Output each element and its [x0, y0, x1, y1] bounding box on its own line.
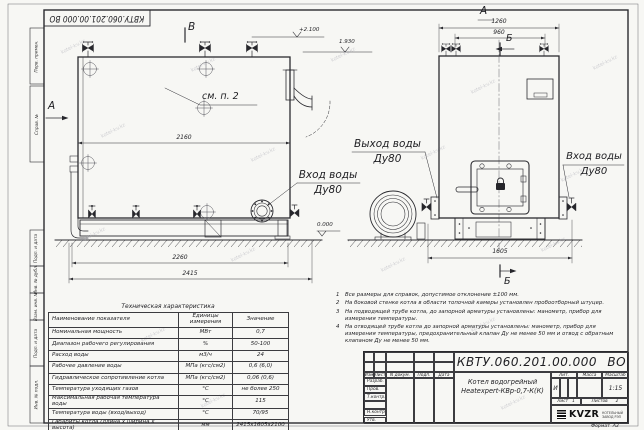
- tech-table-header: Наименование показателя Единицы измерени…: [49, 313, 289, 328]
- rev-cell: [374, 352, 386, 362]
- sheet-label: Лист: [557, 399, 568, 404]
- kvzr-logo-text: KVZR: [569, 409, 599, 420]
- rev-cell: [364, 352, 374, 362]
- dim-1605: 1605: [486, 249, 514, 255]
- row-unit: °С: [179, 384, 233, 395]
- margin-stamp-vzam-inv: Взам. инв. №: [30, 293, 44, 320]
- sheets-cell: Листов 2: [581, 398, 629, 405]
- row-value: 2415х1605х2100: [233, 420, 289, 430]
- row-nkontr-label: Н.контр.: [367, 410, 386, 415]
- tech-table: Наименование показателя Единицы измерени…: [48, 312, 289, 430]
- margin-stamp-label: Подп. и дата: [35, 328, 40, 357]
- title-block: Изм Лист N докум. Подп. Дата Разраб. Про…: [363, 351, 628, 423]
- outlet-label: Выход воды: [350, 139, 425, 150]
- ground-line: [55, 240, 582, 248]
- notes-list: 1Все размеры для справок, допустимое отк…: [336, 292, 628, 346]
- note-text: На боковой стенке котла в области топочн…: [345, 300, 628, 307]
- elevation-1930: 1.930: [339, 40, 355, 46]
- scale-value: 1:15: [609, 385, 622, 392]
- row-name: Максимальная рабочая температура воды: [49, 396, 179, 409]
- company-logo: KVZR КОТЕЛЬНЫЙ ЗАВОД РЭП: [551, 405, 629, 424]
- kvzr-logo-icon: [557, 410, 566, 419]
- row-unit: °С: [179, 408, 233, 419]
- note-number: 1: [336, 292, 345, 299]
- lit-header-label: Лит.: [559, 373, 569, 378]
- inlet-side-label: Вход воды: [296, 170, 360, 181]
- table-row: Температура воды (вход/выход)°С70/95: [49, 408, 289, 419]
- row-unit: %: [179, 339, 233, 350]
- drawing-sheet: kotel-kv.kz kotel-kv.kz kotel-kv.kz kote…: [0, 0, 644, 430]
- col-header-value: Значение: [233, 313, 289, 328]
- mass-header-label: Масса: [583, 373, 597, 378]
- lit-cell-2: [560, 378, 568, 398]
- table-row: Номинальная мощностьМВт0,7: [49, 328, 289, 339]
- table-row: Диапазон рабочего регулирования%50-100: [49, 339, 289, 350]
- row-value: 0,7: [233, 328, 289, 339]
- hdr-podp-label: Подп.: [417, 373, 430, 378]
- sign-col-data: [434, 378, 454, 424]
- note-text: Все размеры для справок, допустимое откл…: [345, 292, 628, 299]
- note-item: 1Все размеры для справок, допустимое отк…: [336, 292, 628, 299]
- rev-cell: [414, 362, 434, 372]
- row-tkontr: Т.контр.: [364, 393, 386, 401]
- sheets-value: 2: [616, 399, 619, 404]
- row-name: Расход воды: [49, 350, 179, 361]
- col-header-unit: Единицы измерения: [179, 313, 233, 328]
- row-unit: МПа (кгс/см2): [179, 373, 233, 384]
- title-doc-number: КВТУ.060.201.00.000 ВО: [454, 352, 629, 372]
- row-nkontr: Н.контр.: [364, 409, 386, 417]
- inlet-side-dn-label: Ду80: [296, 185, 360, 196]
- margin-stamp-label: Инв. № подл.: [35, 380, 40, 410]
- top-corner-doc-number: КВТУ.060.201.00.000 ВО: [44, 10, 150, 26]
- row-value: 50-100: [233, 339, 289, 350]
- hdr-izm-label: Изм: [365, 373, 374, 378]
- margin-stamp-label: Справ. №: [35, 114, 40, 135]
- mass-value-cell: [577, 378, 602, 398]
- margin-stamp-podp-data-1: Подп. и дата: [30, 230, 44, 266]
- row-value: 70/95: [233, 408, 289, 419]
- margin-stamp-inv-podl: Инв. № подл.: [30, 366, 44, 423]
- margin-stamp-label: Инв. № дубл.: [35, 265, 40, 294]
- view-mark-A-side: А: [48, 101, 55, 112]
- note-item: 4На отводящей трубе котла до запорной ар…: [336, 324, 628, 345]
- tech-table-title: Техническая характеристика: [48, 303, 288, 310]
- front-view: [422, 20, 624, 277]
- note-item: 2На боковой стенке котла в области топоч…: [336, 300, 628, 307]
- margin-stamp-label: Подп. и дата: [35, 233, 40, 262]
- product-name-line2: Heatexpert-КВр-0,7-К(К): [461, 387, 544, 396]
- rev-cell: [374, 362, 386, 372]
- elevation-0000: 0.000: [317, 223, 333, 229]
- format-note: Формат А3: [575, 424, 635, 429]
- scale-value-cell: 1:15: [602, 378, 629, 398]
- row-empty: [364, 401, 386, 409]
- note-number: 3: [336, 309, 345, 323]
- dim-2260: 2260: [166, 255, 194, 261]
- row-unit: °С: [179, 396, 233, 409]
- note-number: 2: [336, 300, 345, 307]
- margin-stamp-label: Взам. инв. №: [35, 292, 40, 321]
- row-prov-label: Пров.: [367, 387, 380, 392]
- sheets-label: Листов: [592, 399, 608, 404]
- row-name: Диапазон рабочего регулирования: [49, 339, 179, 350]
- callout-see-item-2: см. п. 2: [202, 92, 239, 102]
- col-header-name: Наименование показателя: [49, 313, 179, 328]
- outlet-dn-label: Ду80: [350, 154, 425, 165]
- row-name: Номинальная мощность: [49, 328, 179, 339]
- section-mark-B-bottom: Б: [504, 277, 511, 287]
- elevation-plus-2100: +2.100: [299, 28, 319, 34]
- flue-collector: [370, 191, 425, 240]
- row-tkontr-label: Т.контр.: [367, 395, 386, 400]
- format-label: Формат: [591, 424, 610, 429]
- sign-col-podp: [414, 378, 434, 424]
- row-value: 0,6 (6,0): [233, 362, 289, 373]
- doc-number-rotated: КВТУ.060.201.00.000 ВО: [50, 13, 145, 23]
- rev-cell: [434, 352, 454, 362]
- lit-value-cell: И: [551, 378, 560, 398]
- table-row: Габариты котла (длина х ширина х высота)…: [49, 420, 289, 430]
- kvzr-logo-subtext: КОТЕЛЬНЫЙ ЗАВОД РЭП: [602, 411, 623, 419]
- lock-icon: [496, 178, 505, 190]
- table-row: Температура уходящих газов°Сне более 250: [49, 384, 289, 395]
- row-value: не более 250: [233, 384, 289, 395]
- rev-cell: [386, 352, 414, 362]
- inlet-front-dn-label: Ду80: [562, 167, 626, 177]
- row-utv: Утв.: [364, 417, 386, 425]
- row-name: Рабочее давление воды: [49, 362, 179, 373]
- furnace-door: [456, 161, 529, 214]
- product-name-line1: Котел водогрейный: [468, 378, 537, 387]
- note-number: 4: [336, 324, 345, 345]
- rev-cell: [434, 362, 454, 372]
- row-name: Температура уходящих газов: [49, 384, 179, 395]
- note-item: 3На подводящей трубе котла, до запорной …: [336, 309, 628, 323]
- table-row: Максимальная рабочая температура воды°С1…: [49, 396, 289, 409]
- table-row: Рабочее давление водыМПа (кгс/см2)0,6 (6…: [49, 362, 289, 373]
- note-text: На подводящей трубе котла, до запорной а…: [345, 309, 628, 323]
- row-name: Температура воды (вход/выход): [49, 408, 179, 419]
- logo-sub-line2: ЗАВОД РЭП: [602, 415, 621, 419]
- row-value: 0,06 (0,6): [233, 373, 289, 384]
- dim-2160: 2160: [170, 135, 198, 141]
- row-value: 115: [233, 396, 289, 409]
- view-mark-A-front: А: [480, 6, 487, 17]
- row-unit: МПа (кгс/см2): [179, 362, 233, 373]
- doc-number-text: КВТУ.060.201.00.000 ВО: [457, 355, 626, 369]
- format-value: А3: [613, 424, 619, 429]
- row-utv-label: Утв.: [367, 418, 376, 423]
- note-text: На отводящей трубе котла до запорной арм…: [345, 324, 628, 345]
- rev-cell: [414, 352, 434, 362]
- rev-cell: [386, 362, 414, 372]
- table-row: Гидравлическое сопротивление котлаМПа (к…: [49, 373, 289, 384]
- row-name: Габариты котла (длина х ширина х высота): [49, 420, 179, 430]
- row-unit: МВт: [179, 328, 233, 339]
- row-prov: Пров.: [364, 386, 386, 394]
- dim-960: 960: [487, 30, 511, 36]
- product-name: Котел водогрейный Heatexpert-КВр-0,7-К(К…: [454, 372, 551, 424]
- lit-cell-3: [568, 378, 577, 398]
- scale-header-label: Масштаб: [605, 373, 625, 378]
- hdr-data-label: Дата: [438, 373, 449, 378]
- row-value: 24: [233, 350, 289, 361]
- margin-stamp-perv-primen: Перв. примен.: [30, 28, 44, 84]
- sheet-cell: Лист 1: [551, 398, 581, 405]
- sign-col-ndoc: [386, 378, 414, 424]
- view-mark-B: В: [188, 22, 195, 33]
- row-unit: мм: [179, 420, 233, 430]
- row-razrab-label: Разраб.: [367, 379, 384, 384]
- sheet-value: 1: [572, 399, 575, 404]
- margin-stamp-sprav-no: Справ. №: [30, 86, 44, 162]
- row-razrab: Разраб.: [364, 378, 386, 386]
- margin-stamp-label: Перв. примен.: [35, 40, 40, 72]
- lit-value: И: [553, 385, 558, 392]
- row-name: Гидравлическое сопротивление котла: [49, 373, 179, 384]
- inlet-front-label: Вход воды: [562, 152, 626, 162]
- rev-cell: [364, 362, 374, 372]
- hdr-ndoc-label: N докум.: [390, 373, 410, 378]
- table-row: Расход водым3/ч24: [49, 350, 289, 361]
- row-unit: м3/ч: [179, 350, 233, 361]
- margin-stamp-inv-dubl: Инв. № дубл.: [30, 266, 44, 293]
- dim-1260: 1260: [485, 19, 513, 25]
- dim-2415: 2415: [176, 271, 204, 277]
- inlet-flange: [251, 200, 273, 222]
- margin-stamp-podp-data-2: Подп. и дата: [30, 320, 44, 366]
- hdr-list-label: Лист: [375, 373, 386, 378]
